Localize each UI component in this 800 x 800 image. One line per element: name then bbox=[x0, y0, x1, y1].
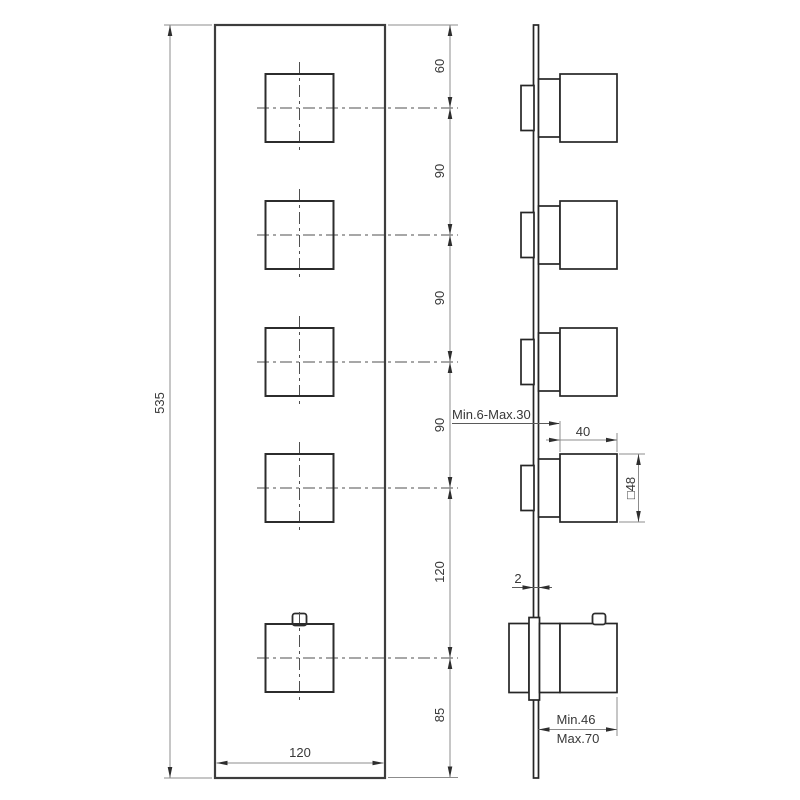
label-spacing-60: 60 bbox=[432, 59, 447, 73]
front-view bbox=[215, 25, 458, 778]
side-knob-2-backbox bbox=[521, 213, 534, 258]
label-plate-thickness: 2 bbox=[514, 571, 521, 586]
valve-trim-dimension-drawing: 535 60 90 90 90 120 85 120 bbox=[0, 0, 800, 800]
dim-chain-right: 60 90 90 90 120 85 bbox=[388, 25, 458, 778]
side-knob-3-stem bbox=[539, 333, 561, 391]
label-spacing-90c: 90 bbox=[432, 418, 447, 432]
side-knob-3-knob bbox=[560, 328, 617, 396]
side-knob-2-stem bbox=[539, 206, 561, 264]
label-handle-width: 40 bbox=[576, 424, 590, 439]
label-overall-height: 535 bbox=[152, 392, 167, 414]
side-knob-3-backbox bbox=[521, 340, 534, 385]
side-knob-5-stem bbox=[540, 624, 561, 693]
label-spacing-90a: 90 bbox=[432, 164, 447, 178]
dim-plate-thickness: 2 bbox=[512, 571, 552, 590]
label-spacing-90b: 90 bbox=[432, 291, 447, 305]
label-spacing-120: 120 bbox=[432, 561, 447, 583]
dim-wall-thickness-range: Min.6-Max.30 bbox=[452, 407, 560, 426]
side-knob-1-backbox bbox=[521, 86, 534, 131]
side-knob-1-knob bbox=[560, 74, 617, 142]
label-wall-thickness-range: Min.6-Max.30 bbox=[452, 407, 531, 422]
dim-handle-square: □48 bbox=[619, 454, 645, 522]
side-knob-5-flange bbox=[529, 618, 540, 701]
side-knob-2-knob bbox=[560, 201, 617, 269]
label-handle-square: □48 bbox=[623, 477, 638, 499]
side-knob-5 bbox=[509, 614, 617, 701]
side-knob-4-knob bbox=[560, 454, 617, 522]
label-spacing-85: 85 bbox=[432, 708, 447, 722]
dim-overall-height: 535 bbox=[152, 25, 212, 778]
side-knob-5-button bbox=[593, 614, 606, 625]
side-knob-1-stem bbox=[539, 79, 561, 137]
technical-drawing-canvas: 535 60 90 90 90 120 85 120 bbox=[0, 0, 800, 800]
label-projection-max: Max.70 bbox=[557, 731, 600, 746]
dim-projection: Min.46 Max.70 bbox=[539, 697, 618, 746]
label-projection-min: Min.46 bbox=[556, 712, 595, 727]
dim-handle-width: 40 bbox=[546, 421, 617, 452]
side-knob-4-stem bbox=[539, 459, 561, 517]
side-knob-5-backbox bbox=[509, 624, 529, 693]
side-view bbox=[509, 25, 617, 778]
side-knob-4-backbox bbox=[521, 466, 534, 511]
side-knob-5-knob bbox=[560, 624, 617, 693]
label-plate-width: 120 bbox=[289, 745, 311, 760]
